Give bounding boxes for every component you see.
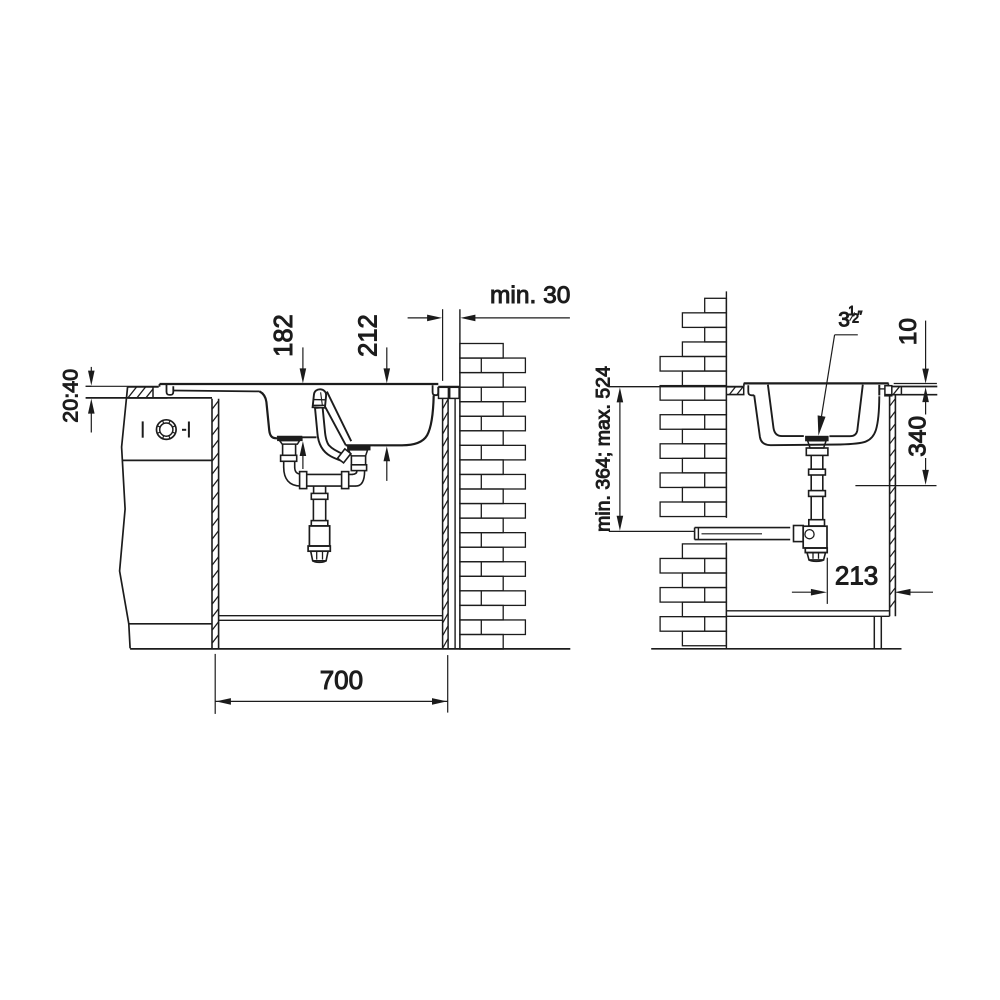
svg-text:10: 10 bbox=[895, 318, 922, 345]
svg-text:20:40: 20:40 bbox=[59, 369, 83, 423]
svg-text:min. 30: min. 30 bbox=[490, 282, 570, 309]
svg-text:″: ″ bbox=[857, 307, 862, 323]
svg-text:min. 364; max. 524: min. 364; max. 524 bbox=[592, 366, 614, 532]
svg-text:182: 182 bbox=[270, 314, 298, 357]
svg-text:212: 212 bbox=[354, 314, 382, 357]
svg-text:213: 213 bbox=[835, 560, 878, 590]
svg-text:340: 340 bbox=[905, 416, 932, 457]
svg-text:700: 700 bbox=[320, 665, 363, 695]
